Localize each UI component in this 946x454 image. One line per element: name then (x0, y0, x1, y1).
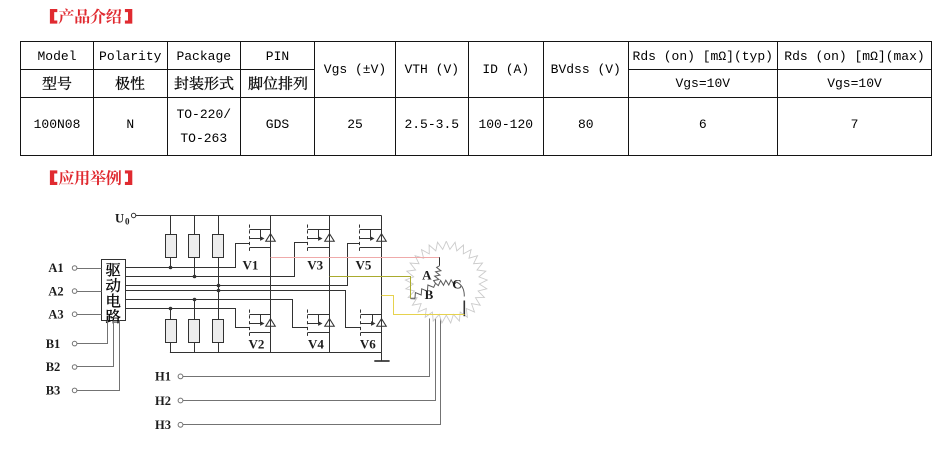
svg-text:V2: V2 (249, 337, 265, 352)
svg-text:H3: H3 (155, 418, 171, 432)
svg-text:V1: V1 (243, 258, 259, 273)
svg-text:B3: B3 (46, 384, 61, 398)
svg-text:B: B (425, 287, 434, 302)
svg-text:A3: A3 (48, 308, 63, 322)
svg-text:B2: B2 (46, 360, 61, 374)
svg-text:H1: H1 (155, 370, 171, 384)
svg-text:U: U (115, 212, 124, 226)
svg-text:V6: V6 (360, 337, 376, 352)
svg-text:A2: A2 (48, 284, 63, 298)
svg-text:H2: H2 (155, 394, 171, 408)
svg-text:V5: V5 (356, 258, 372, 273)
svg-text:0: 0 (125, 217, 130, 227)
svg-text:A1: A1 (48, 261, 63, 275)
svg-text:V3: V3 (307, 258, 323, 273)
svg-text:A: A (422, 267, 432, 282)
svg-text:V4: V4 (308, 337, 324, 352)
svg-text:B1: B1 (46, 337, 61, 351)
svg-text:C: C (452, 277, 461, 292)
